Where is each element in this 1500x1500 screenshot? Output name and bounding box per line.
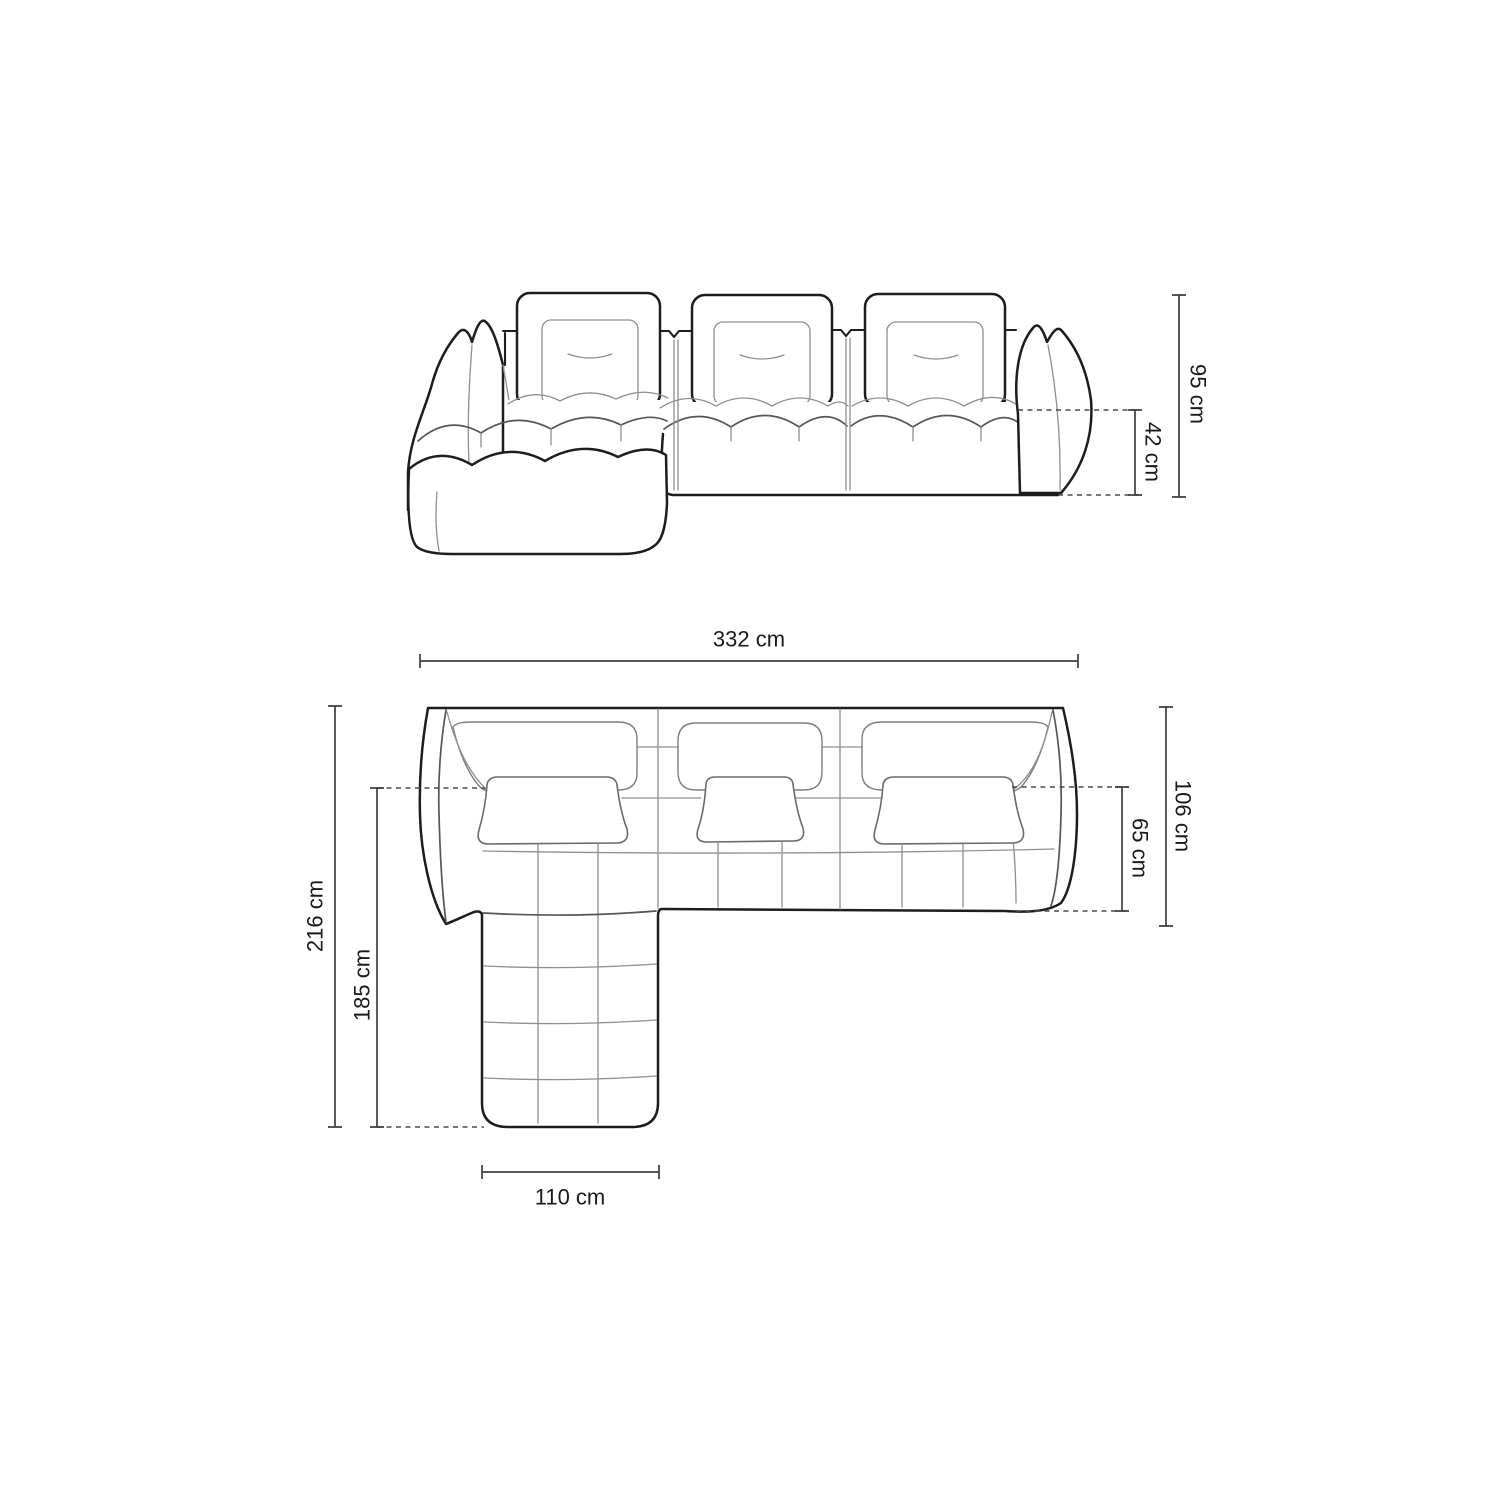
dimension-label-185: 185 cm bbox=[350, 949, 375, 1021]
plan-pillow-2 bbox=[697, 777, 804, 842]
back-cushion-1 bbox=[517, 293, 660, 407]
dimension-label-42: 42 cm bbox=[1141, 422, 1166, 482]
dimension-label-95: 95 cm bbox=[1186, 364, 1211, 424]
dimension-label-216: 216 cm bbox=[303, 880, 328, 952]
dimension-label-106: 106 cm bbox=[1171, 780, 1196, 852]
dimension-label-65: 65 cm bbox=[1128, 818, 1153, 878]
chaise-body bbox=[408, 449, 667, 554]
dimension-total-width: 332 cm bbox=[420, 627, 1078, 669]
dimension-label-110: 110 cm bbox=[535, 1185, 606, 1210]
dimension-line-65 bbox=[1115, 787, 1129, 911]
dimension-line-110 bbox=[482, 1165, 659, 1179]
dimension-total-height: 95 cm bbox=[1172, 295, 1211, 497]
dimension-chaise-width: 110 cm bbox=[482, 1165, 659, 1210]
back-cushion-2 bbox=[692, 295, 832, 407]
back-cushion-3 bbox=[865, 294, 1005, 407]
plan-pillow-3 bbox=[874, 777, 1023, 844]
dimension-line-42 bbox=[1128, 410, 1142, 495]
dimension-line-216 bbox=[328, 706, 342, 1127]
dimension-line-95 bbox=[1172, 295, 1186, 497]
dimension-body-depth: 106 cm bbox=[1159, 707, 1196, 926]
seat-mask-right bbox=[657, 402, 1017, 492]
plan-pillow-1 bbox=[478, 777, 627, 844]
dimension-line-332 bbox=[420, 654, 1078, 668]
dimension-total-depth: 216 cm bbox=[303, 706, 343, 1127]
diagram-svg: 95 cm 42 cm 3 bbox=[0, 0, 1500, 1500]
front-view: 95 cm 42 cm bbox=[408, 293, 1211, 554]
plan-view: 332 cm 216 cm 185 cm 106 cm 65 cm 110 cm bbox=[303, 627, 1196, 1210]
back-cushion-3-outer bbox=[865, 294, 1005, 407]
sofa-dimension-diagram: 95 cm 42 cm 3 bbox=[0, 0, 1500, 1500]
dimension-label-332: 332 cm bbox=[713, 627, 785, 652]
back-cushion-2-outer bbox=[692, 295, 832, 407]
